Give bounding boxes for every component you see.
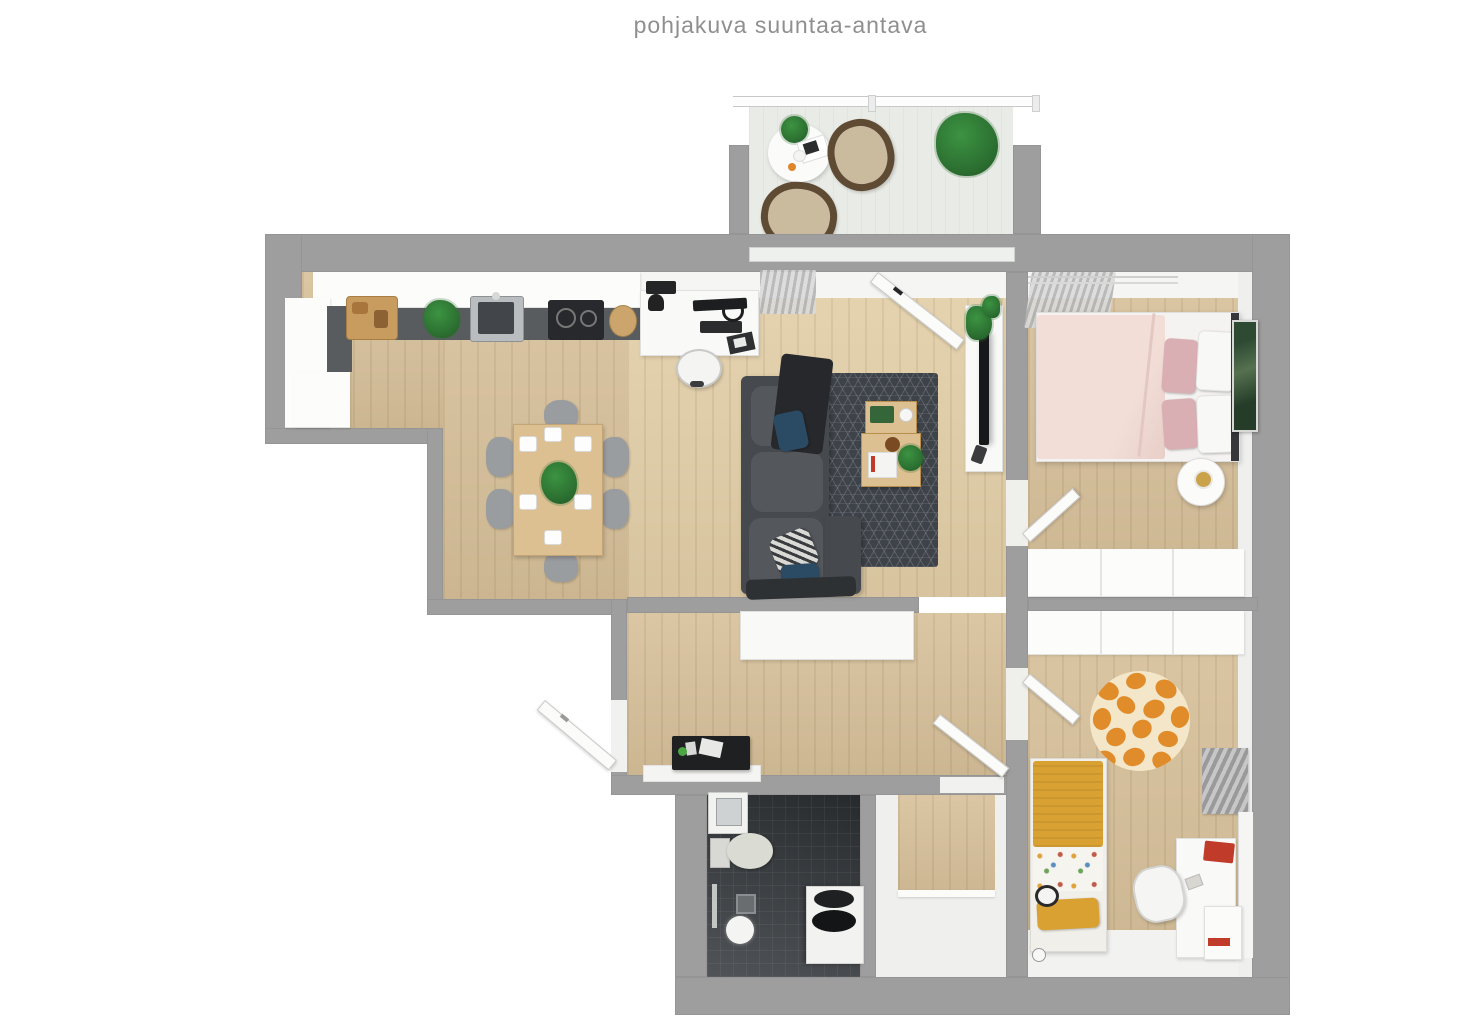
washer-door-icon xyxy=(814,890,854,908)
washer-door-icon xyxy=(812,910,856,932)
toilet-bowl xyxy=(727,833,773,869)
shower-head-icon xyxy=(726,916,754,944)
shower-pipe-icon xyxy=(712,884,717,928)
shower-drain-icon xyxy=(736,894,756,914)
floor-plan-canvas: pohjakuva suuntaa-antava xyxy=(0,0,1459,1022)
bathroom xyxy=(0,0,1459,1022)
sink-basin xyxy=(716,798,742,826)
